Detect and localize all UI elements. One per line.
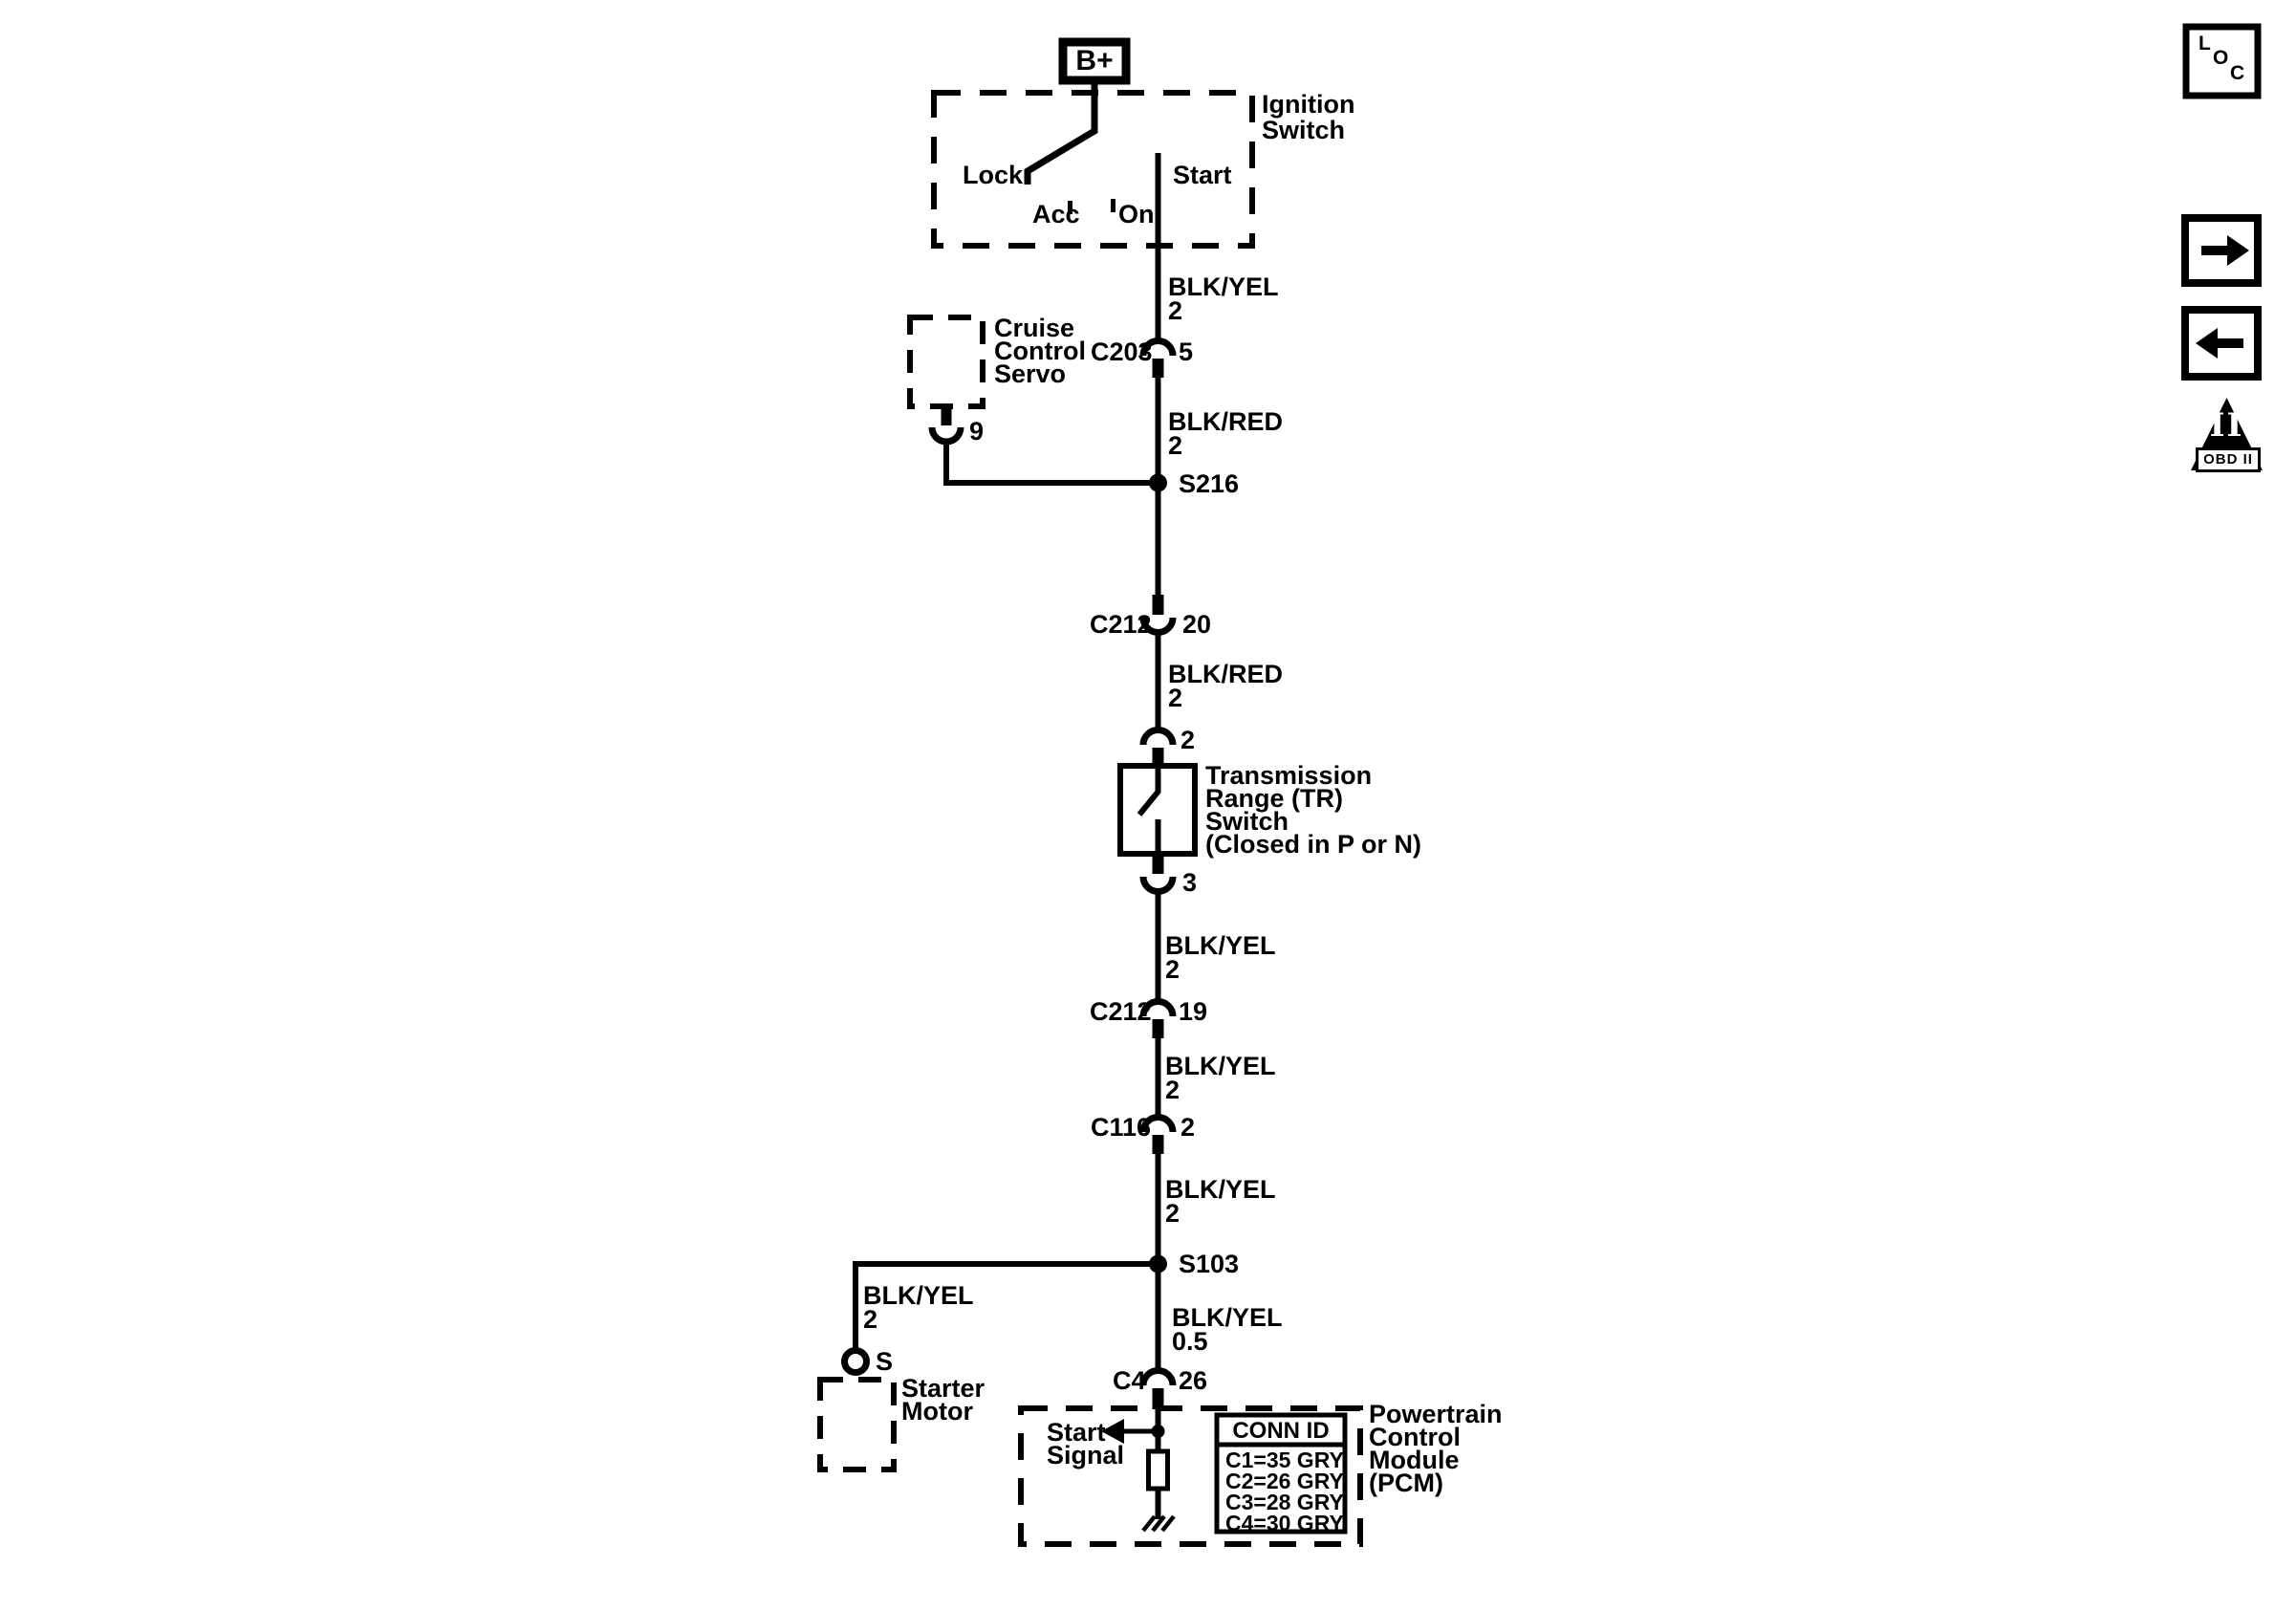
position-lock-label: Lock [963,162,1023,188]
connector-c116-pin: 2 [1180,1114,1195,1141]
cruise-servo-pin: 9 [969,418,984,445]
wire3-color: BLK/RED [1168,661,1283,687]
wire1-color: BLK/YEL [1168,273,1279,300]
position-acc-label: Acc [1032,201,1080,228]
wiring-diagram-page: B+ Ignition Switch Lock Acc On Start BLK… [0,0,2296,1611]
position-on-label: On [1118,201,1155,228]
wire9-gauge: 0.5 [1172,1328,1208,1355]
wire-s216-cruise [946,442,1159,483]
starter-terminal-label: S [876,1348,893,1375]
connector-c203-pin: 5 [1179,338,1193,365]
wire5-gauge: 2 [1165,956,1180,983]
cruise-servo-label-3: Servo [994,360,1066,387]
wire2-color: BLK/RED [1168,408,1283,435]
next-page-arrow-icon[interactable] [2185,218,2258,283]
connector-c4-pin: 26 [1179,1367,1207,1394]
conn-id-row-4: C4=30 GRY [1225,1512,1344,1535]
loc-letter-c[interactable]: C [2230,63,2244,84]
connector-c4-name: C4 [1113,1367,1146,1394]
wire7-gauge: 2 [1165,1200,1180,1227]
tr-switch-pin-in: 2 [1180,727,1195,753]
loc-letter-o[interactable]: O [2213,48,2228,69]
connector-tr-pin3-symbol [1143,877,1173,892]
start-signal-label-2: Signal [1047,1442,1124,1469]
wire2-gauge: 2 [1168,432,1182,459]
pcm-resistor-symbol [1149,1451,1168,1489]
connector-c212-20-pin: 20 [1182,611,1211,638]
wire8-color: BLK/YEL [863,1282,974,1309]
ignition-lever-line [1028,80,1094,185]
wire5-color: BLK/YEL [1165,932,1276,959]
ignition-switch-label-1: Ignition [1262,91,1354,118]
splice-s216-label: S216 [1179,470,1239,497]
obd2-badge-label: OBD II [2196,447,2261,472]
starter-motor-box [820,1380,894,1469]
obd2-numeral: II [2192,409,2262,442]
tr-switch-label-4: (Closed in P or N) [1205,831,1421,858]
connector-c203-name: C203 [1091,338,1153,365]
pcm-label-4: (PCM) [1369,1469,1443,1496]
connector-c212-20-name: C212 [1090,611,1152,638]
connector-c116-name: C116 [1091,1114,1151,1141]
position-start-label: Start [1173,162,1232,188]
connector-c4-symbol [1143,1371,1173,1410]
battery-terminal-label: B+ [1059,38,1130,84]
wiring-artwork [0,0,2296,1611]
loc-letter-l[interactable]: L [2199,33,2211,54]
wire8-gauge: 2 [863,1306,877,1333]
wire7-color: BLK/YEL [1165,1176,1276,1203]
splice-s103-label: S103 [1179,1251,1239,1277]
ignition-switch-box [934,80,1252,341]
conn-id-header: CONN ID [1217,1419,1345,1443]
starter-motor-label-2: Motor [901,1398,973,1425]
tr-switch-pin-out: 3 [1182,869,1197,896]
wire3-gauge: 2 [1168,685,1182,711]
ignition-switch-label-2: Switch [1262,117,1345,143]
wire6-color: BLK/YEL [1165,1053,1276,1079]
connector-pin9-symbol [932,427,961,442]
connector-c212-19-name: C212 [1090,998,1152,1025]
connector-tr-pin2-symbol [1143,730,1173,746]
connector-c212-19-pin: 19 [1179,998,1207,1025]
wire1-gauge: 2 [1168,297,1182,324]
starter-ring-terminal [845,1351,867,1373]
prev-page-arrow-icon[interactable] [2185,310,2258,377]
wire6-gauge: 2 [1165,1077,1180,1103]
